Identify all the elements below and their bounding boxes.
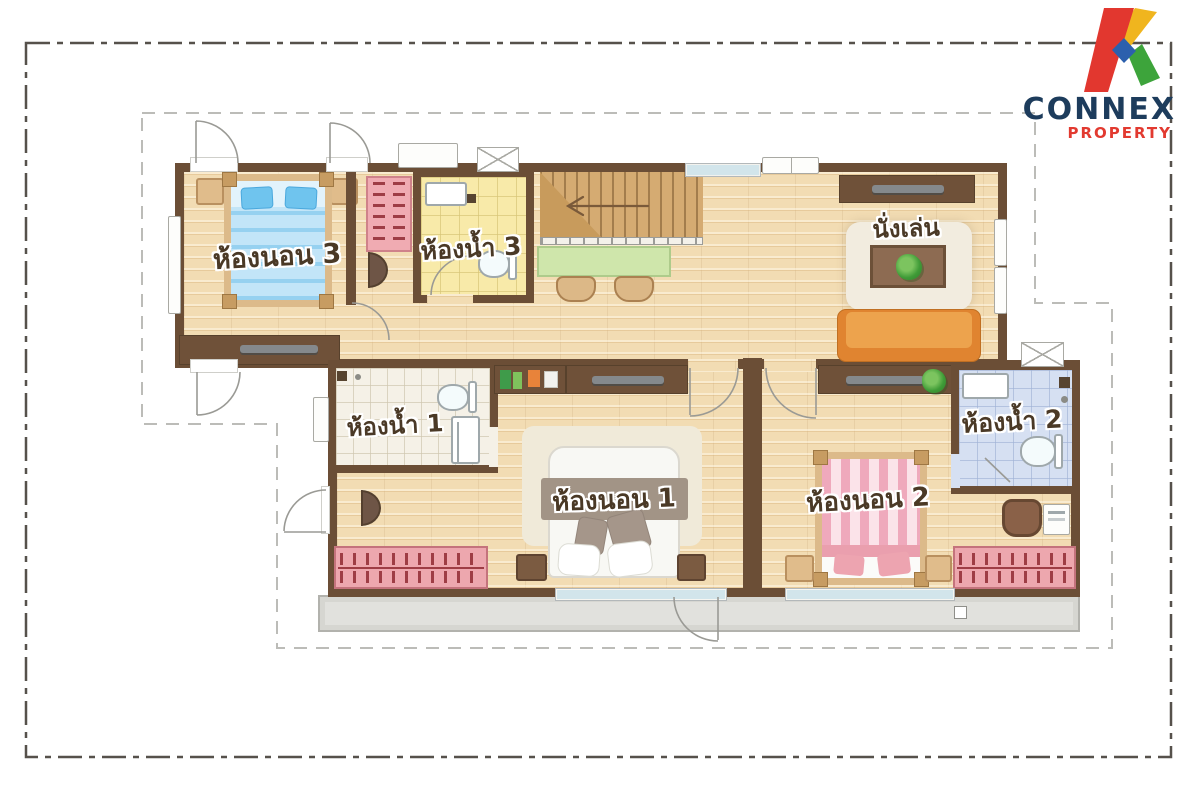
bed-1-cushion-1 [557,543,601,578]
dresser-hanger-marks [373,182,385,246]
bathroom-3-door-gap [427,294,473,304]
door-arc [284,490,326,532]
bed-3-pillow-left [240,186,273,210]
study-desk [537,246,671,277]
desk-chair-2 [614,276,654,302]
bathroom-2-door-gap [951,454,960,488]
balcony-sliding-door-1 [556,589,726,600]
bed-post [222,294,237,309]
desk-chair-bedroom-2 [1002,499,1042,537]
bedroom-2-nightstand-left [785,555,814,582]
bedroom-3-top-door-gap-2 [326,157,368,172]
bedroom-divider-wall [743,358,762,597]
rack-hanger-marks [959,553,1071,565]
rack-hanger-marks [340,571,482,583]
door-arc [197,372,240,415]
bed-2-cushion-2 [877,551,911,577]
bedroom-1-door-gap [688,359,738,372]
bedroom-3-nightstand-left [196,178,224,205]
rack-rail [957,567,1072,569]
bed-post [914,450,929,465]
cabinet-plant [922,369,946,393]
bathroom-2-heater [1059,377,1070,388]
stair-landing-triangle [540,172,703,238]
coffee-table-plant [896,254,922,280]
shelf-book-orange [528,370,540,387]
hall-top-window [686,164,760,176]
room-label-bathroom-3: ห้องน้ำ 3 [420,226,523,271]
bed-post [319,172,334,187]
brand-name: CONNEX [1023,92,1176,127]
rack-hanger-marks [959,571,1071,583]
bed-3-pillow-right [284,186,317,210]
bed-post [222,172,237,187]
living-tv [872,185,944,193]
bedroom-3-top-door-gap-1 [190,157,238,172]
shelf-book-lightgreen [513,372,522,389]
bathroom-3-heater [467,194,476,203]
bed-post [319,294,334,309]
computer-line [1048,511,1065,514]
logo-x-mark [1083,8,1161,92]
dresser-hanger-marks [393,182,405,246]
door-leaf-line [791,158,793,173]
desk-computer [1043,504,1070,535]
room-label-bedroom-1: ห้องนอน 1 [551,477,676,522]
brand-logo: CONNEX PROPERTY [1028,4,1178,144]
bedroom-1-nightstand-left [516,554,547,581]
room-label-bathroom-1: ห้องน้ำ 1 [346,403,445,447]
shelf-book-green [500,370,511,389]
bedroom-3-bottom-door-gap [190,359,238,373]
closet-left-door-gap [321,486,330,534]
bed-post [813,450,828,465]
bathroom-2-faucet-dot [1061,396,1068,403]
bathroom-3-awning-window [477,147,519,172]
room-label-bedroom-2: ห้องนอน 2 [805,476,931,523]
bathroom-1-toilet-tank [468,381,477,413]
bathroom-1-drain [337,371,347,381]
room-label-bathroom-2: ห้องน้ำ 2 [961,399,1064,444]
bedroom-3-partition-wall [346,163,356,305]
computer-line [1048,518,1065,521]
bedroom-2-door-gap [764,359,816,372]
closet-rack-right [953,546,1076,589]
shelf-book-white [544,371,558,388]
bathroom-2-sink [962,373,1009,399]
bedroom-3-tv [240,345,318,353]
bathroom-1-faucet-dot [355,374,361,380]
sofa [837,309,981,362]
bathroom-3-window-box [398,143,458,168]
living-right-window-1 [994,219,1007,266]
room-label-living: นั่งเล่น [872,207,941,248]
room-label-bedroom-3: ห้องนอน 3 [212,231,343,281]
rack-rail [338,567,484,569]
bathroom-1-left-window [313,397,329,442]
balcony-hatch-box [954,606,967,619]
desk-chair-1 [556,276,596,302]
balcony-sliding-door-2 [786,589,954,600]
bed-post [813,572,828,587]
brand-tagline: PROPERTY [1067,124,1172,142]
bedroom-2-nightstand-right [925,555,952,582]
bedroom-1-tv [592,376,664,384]
living-right-window-2 [994,267,1007,314]
bed-1-cushion-2 [606,539,654,578]
stair-railing [540,237,703,245]
bathroom-1-door-gap [489,427,498,467]
hall-dresser [366,176,412,252]
floor-plan-page: ห้องนอน 3 ห้องน้ำ 3 นั่งเล่น ห้องน้ำ 1 ห… [0,0,1200,800]
hall-top-door [762,157,819,174]
closet-rack-left [334,546,488,589]
bedroom-3-left-window [168,216,181,314]
bedroom-2-tv [846,376,924,384]
bathroom-3-sink [425,182,467,206]
shower-glass-line [457,422,459,462]
bed-2-cushion-1 [833,554,865,577]
sofa-seat [846,312,972,348]
staircase [540,172,703,238]
bedroom-1-nightstand-right [677,554,706,581]
bathroom-1-shower [451,416,480,464]
bathroom-2-window [1021,342,1064,367]
rack-hanger-marks [340,553,482,565]
